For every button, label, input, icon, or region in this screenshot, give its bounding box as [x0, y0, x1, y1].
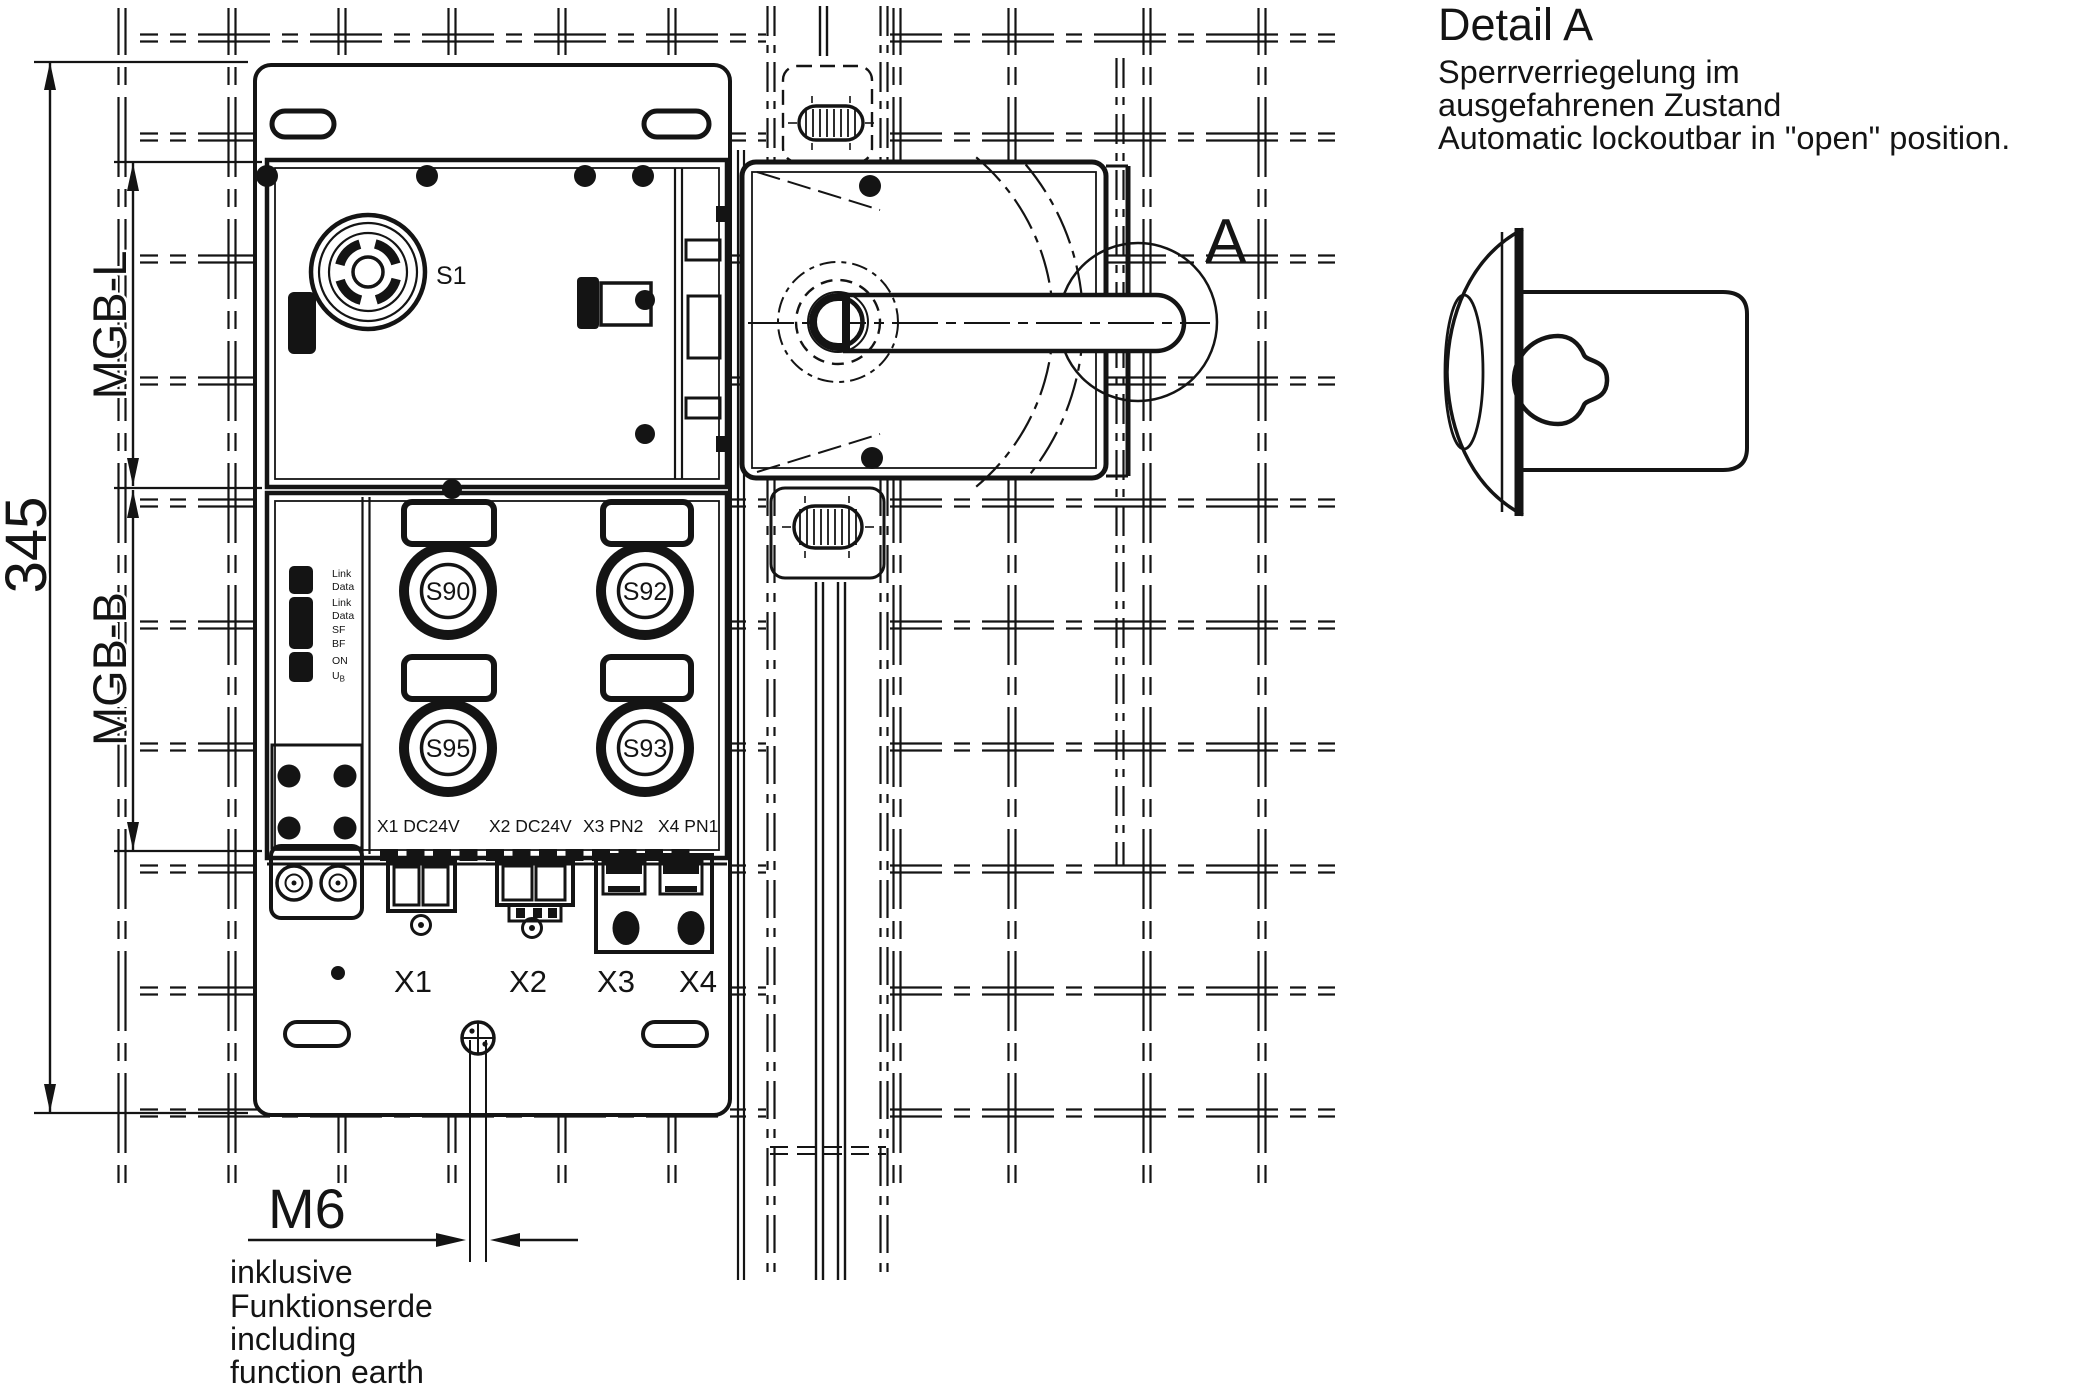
housing-screw [632, 165, 654, 187]
connector-designations: X1 DC24V X2 DC24V X3 PN2 X4 PN1 [377, 816, 718, 836]
plate-pin [331, 966, 345, 980]
detail-marker-label: A [1205, 207, 1247, 276]
port-label: X4 [679, 964, 717, 999]
led-label: ON [332, 655, 348, 667]
button-label: S90 [426, 578, 470, 606]
dim-overall-label: 345 [0, 497, 59, 594]
button-label: S95 [426, 735, 470, 763]
housing-screw [859, 175, 881, 197]
latch-pivot [635, 290, 655, 310]
dim-thread-label: M6 [268, 1177, 346, 1240]
connector-label: X4 PN1 [658, 816, 718, 836]
padlock-cutout [1514, 336, 1607, 424]
lock-insert-profile [813, 297, 846, 347]
dome-profile [1447, 229, 1523, 515]
led-block [289, 652, 313, 682]
button-label: S92 [623, 578, 667, 606]
housing-screw [442, 479, 462, 499]
led-label: Link [332, 568, 352, 580]
port-label: X1 [394, 964, 432, 999]
connector-label: X3 PN2 [583, 816, 643, 836]
footnote-line: including [230, 1321, 356, 1357]
footnote: inklusive Funktionserde including functi… [230, 1254, 433, 1384]
latch-pivot [635, 424, 655, 444]
led-block [289, 566, 313, 594]
detail-heading: Detail A [1438, 0, 1593, 50]
drawing-page: S1 Link Data Link Data SF BF [0, 0, 2082, 1384]
footnote-line: inklusive [230, 1254, 353, 1290]
housing-screw [861, 447, 883, 469]
connector-label: X1 DC24V [377, 816, 460, 836]
technical-drawing: S1 Link Data Link Data SF BF [0, 0, 2082, 1384]
footnote-line: function earth [230, 1354, 424, 1384]
led-label: SF [332, 624, 345, 636]
led-block [289, 597, 313, 649]
lockout-bar-detail [1521, 292, 1747, 470]
label-plate [288, 292, 316, 354]
detail-line-de2: ausgefahrenen Zustand [1438, 87, 1781, 123]
housing-screw [574, 165, 596, 187]
dome-lens [1445, 295, 1483, 449]
bolt-tongue-dark [577, 277, 599, 329]
led-label: Data [332, 581, 354, 593]
dim-lower-label: MGB-B [83, 592, 136, 746]
connector-label: X2 DC24V [489, 816, 572, 836]
led-label: Data [332, 610, 354, 622]
dim-upper-label: MGB-L [83, 251, 136, 400]
port-label: X3 [597, 964, 635, 999]
footnote-line: Funktionserde [230, 1288, 433, 1324]
port-label: X2 [509, 964, 547, 999]
led-label: BF [332, 638, 345, 650]
detail-note: Detail A Sperrverriegelung im ausgefahre… [1438, 0, 2010, 156]
detail-view [1445, 228, 1747, 516]
locking-module: S1 [256, 160, 727, 487]
housing-screw [416, 165, 438, 187]
button-label: S93 [623, 735, 667, 763]
estop-label: S1 [436, 262, 467, 290]
led-label: Link [332, 597, 352, 609]
rail-lower-bg [766, 478, 890, 1280]
detail-line-en: Automatic lockoutbar in "open" position. [1438, 120, 2010, 156]
bus-module: Link Data Link Data SF BF ON UB S90 S92 [267, 479, 727, 864]
housing-screw [256, 165, 278, 187]
detail-line-de1: Sperrverriegelung im [1438, 54, 1740, 90]
